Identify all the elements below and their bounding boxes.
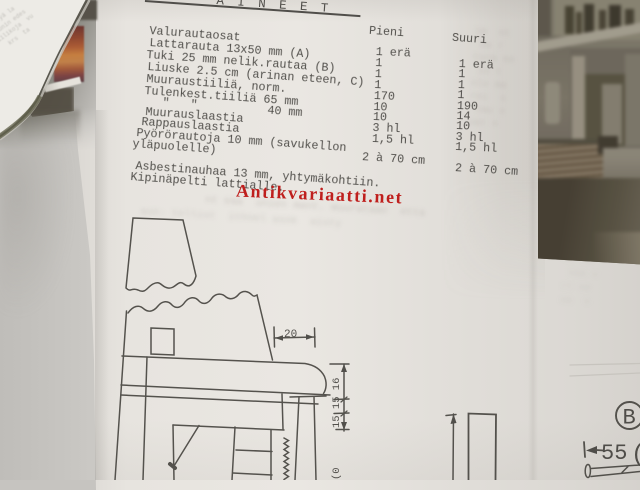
svg-text:15 15 16: 15 15 16 xyxy=(331,378,343,428)
svg-text:55: 55 xyxy=(601,441,627,466)
svg-text:B: B xyxy=(623,406,636,431)
svg-text:(0: (0 xyxy=(331,467,343,480)
svg-text:20: 20 xyxy=(284,329,297,341)
